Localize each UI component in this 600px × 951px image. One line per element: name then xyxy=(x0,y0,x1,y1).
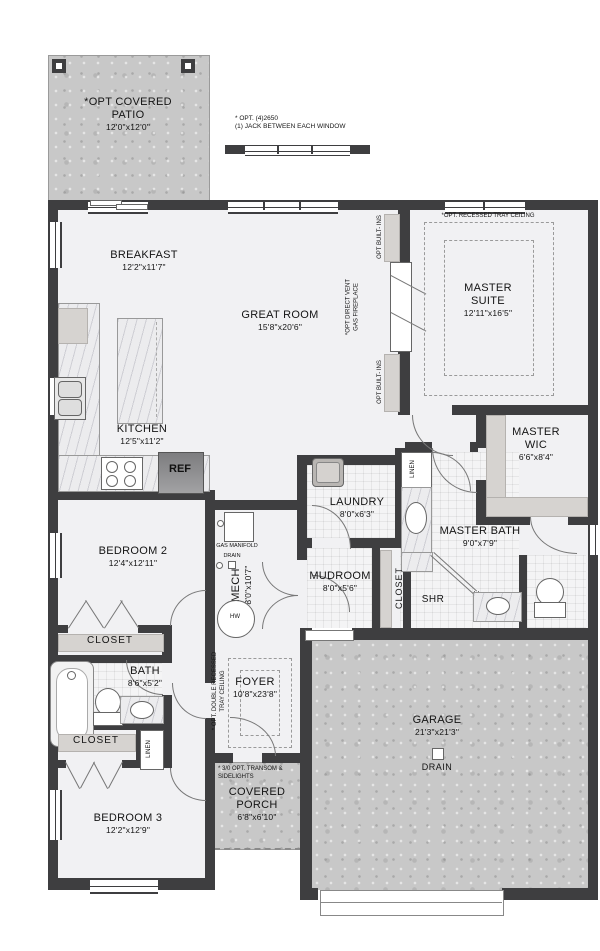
garage-west-wall xyxy=(300,628,312,900)
room-label-garage: GARAGE 21'3"x21'3" xyxy=(387,714,487,737)
wall-segment xyxy=(48,210,58,222)
wall-segment xyxy=(48,625,68,633)
wall-segment xyxy=(148,200,228,210)
wall-segment xyxy=(476,480,486,515)
shower-seat xyxy=(401,552,433,572)
wall-segment xyxy=(48,878,90,890)
slider-leaf xyxy=(116,204,148,210)
burner xyxy=(124,461,136,473)
room-label-patio: *OPT COVERED PATIO 12'0"x12'0" xyxy=(73,96,183,132)
water-heater-label: HW xyxy=(217,614,253,621)
garage-drain-square xyxy=(432,748,444,760)
window-mullion xyxy=(263,200,265,210)
ref-label: REF xyxy=(158,463,202,476)
room-label-bedroom2: BEDROOM 2 12'4"x12'11" xyxy=(73,545,193,568)
patio-post-inner xyxy=(56,63,62,69)
kitchen-cabinet xyxy=(58,308,88,344)
room-label-master-bath: MASTER BATH 9'0"x7'9" xyxy=(425,525,535,548)
wall-segment xyxy=(502,888,598,900)
tub-drain xyxy=(67,671,76,680)
wall-segment xyxy=(588,210,598,525)
bath-toilet-tank xyxy=(93,712,123,726)
window-detail-endcap xyxy=(350,145,370,154)
bedroom3-front-window xyxy=(90,878,158,894)
room-label-great-room: GREAT ROOM 15'8"x20'6" xyxy=(220,309,340,332)
window-detail-endcap xyxy=(225,145,245,154)
wall-segment xyxy=(588,555,598,900)
window-mullion xyxy=(299,200,301,210)
bedroom2-window xyxy=(48,533,62,578)
fireplace-note: *OPT DIRECT VENT GAS FIREPLACE xyxy=(346,250,370,365)
room-label-master-wic: MASTER WIC 6'6"x8'4" xyxy=(500,426,572,462)
sink-basin xyxy=(58,399,82,416)
builtins-top-note: OPT BUILT- INS xyxy=(377,207,387,267)
room-label-bedroom3: BEDROOM 3 12'2"x12'9" xyxy=(68,812,188,835)
window-mullion xyxy=(483,200,485,210)
master-toilet-tank xyxy=(534,602,566,618)
burner xyxy=(106,475,118,487)
wall-segment xyxy=(48,200,88,210)
mech-drain-circle xyxy=(216,562,223,569)
bedroom3-window xyxy=(48,790,62,840)
patio-post-inner xyxy=(185,63,191,69)
bath-vanity-sink xyxy=(130,701,154,719)
wall-segment xyxy=(452,405,598,415)
builtins-bottom-note: OPT BUILT- INS xyxy=(377,352,387,412)
wall-segment xyxy=(205,500,307,510)
wall-segment xyxy=(205,768,215,878)
bed2-closet-label: CLOSET xyxy=(58,635,162,647)
hall-closet-label: CLOSET xyxy=(58,735,134,747)
shr-label: SHR xyxy=(408,594,458,606)
room-label-master-suite: MASTER SUITE 12'11"x16'5" xyxy=(448,282,528,318)
linen-bath-label: LINEN xyxy=(146,724,156,774)
floor-plan: REF GAS MANIFOLD DRAIN MECH 8'0"x10'7" H… xyxy=(0,0,600,951)
island-dashed xyxy=(121,322,157,417)
master-vanity-sink xyxy=(405,502,427,534)
room-label-covered-porch: COVERED PORCH 6'8"x6'10" xyxy=(226,786,288,822)
garage-drain-label: DRAIN xyxy=(407,762,467,773)
wall-segment xyxy=(48,268,58,378)
foyer-tray-note: * OPT. DOUBLE RECESSED TRAY CEILING xyxy=(212,651,228,731)
tray-ceiling-note: *OPT. RECESSED TRAY CEILING xyxy=(424,213,552,221)
garage-door-line xyxy=(320,902,502,903)
breakfast-window xyxy=(48,222,62,268)
burner xyxy=(106,461,118,473)
sink-basin xyxy=(58,381,82,398)
laundry-sink-basin xyxy=(316,462,340,483)
mudroom-garage-door-leaf xyxy=(305,630,354,641)
burner xyxy=(124,475,136,487)
window-detail-glass xyxy=(245,145,350,156)
master-vanity2-sink xyxy=(486,597,510,615)
room-label-kitchen: KITCHEN 12'5"x11'2" xyxy=(92,423,192,446)
room-label-mudroom: MUDROOM 8'0"x5'6" xyxy=(290,570,390,593)
triple-window xyxy=(228,200,338,214)
room-label-laundry: LAUNDRY 8'0"x6'3" xyxy=(307,496,407,519)
gas-manifold-dot xyxy=(217,520,224,527)
wic-shelf-bottom xyxy=(486,497,588,517)
wall-segment xyxy=(338,200,445,210)
wall-segment xyxy=(525,200,598,210)
wall-segment xyxy=(48,760,66,768)
wall-segment xyxy=(352,628,598,640)
window-option-note: * OPT. (4)2650 (1) JACK BETWEEN EACH WIN… xyxy=(235,115,385,131)
wall-segment xyxy=(205,753,233,763)
master-window xyxy=(445,200,525,214)
room-label-bath: BATH 8'6"x5'2" xyxy=(105,665,185,688)
wall-segment xyxy=(297,538,312,548)
window-detail-mullion xyxy=(311,145,313,154)
transom-note: * 3/0 OPT. TRANSOM & SIDELIGHTS xyxy=(218,766,296,781)
room-label-breakfast: BREAKFAST 12'2"x11'7" xyxy=(84,249,204,272)
wall-segment xyxy=(48,415,58,533)
window-detail-mullion xyxy=(277,145,279,154)
wall-segment xyxy=(158,878,215,890)
garage-door xyxy=(320,890,504,916)
toilet-room-window xyxy=(588,525,600,555)
porch-edge-dashed xyxy=(214,848,301,850)
